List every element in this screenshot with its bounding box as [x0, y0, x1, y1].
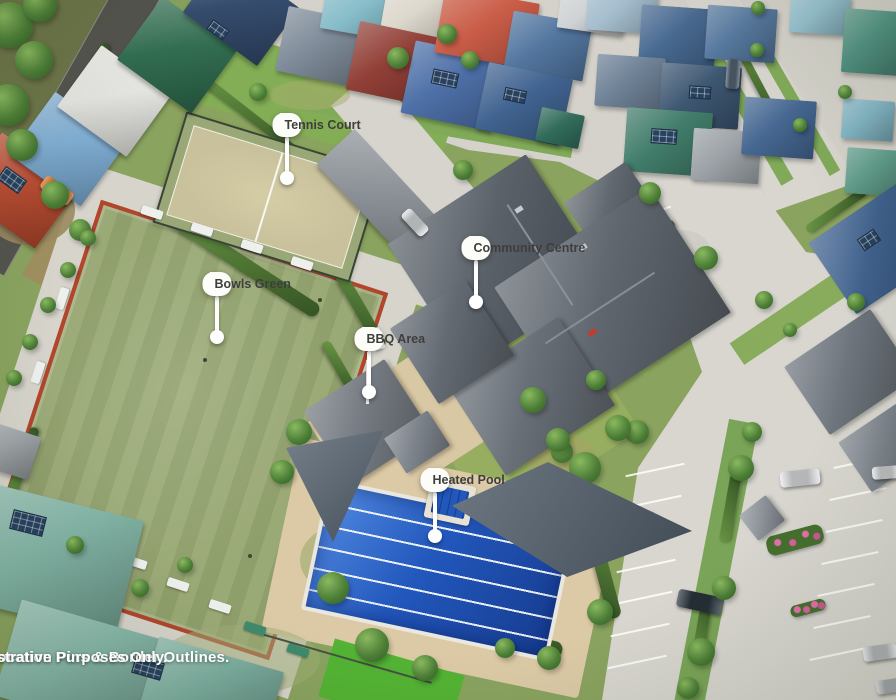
aerial-photo: Tennis Court Community Centre Bowls Gree… — [0, 0, 896, 700]
tree — [355, 628, 389, 662]
tree — [605, 415, 631, 441]
tree — [131, 579, 149, 597]
pin-label-text: BBQ Area — [367, 332, 426, 346]
tree — [742, 422, 762, 442]
tree — [520, 387, 546, 413]
tree — [80, 230, 96, 246]
disclaimer-line2: Illustrative Purposes Only. — [0, 647, 168, 669]
tree — [687, 638, 715, 666]
tree — [712, 576, 736, 600]
pin-label-text: Heated Pool — [433, 473, 505, 487]
tree — [755, 291, 773, 309]
tree — [750, 43, 764, 57]
house-roof — [704, 5, 778, 64]
tree — [317, 572, 349, 604]
tree — [177, 557, 193, 573]
pin-dot — [280, 171, 294, 185]
tree — [587, 599, 613, 625]
tree — [677, 677, 699, 699]
pin-label: Community Centre — [462, 236, 491, 260]
solar-panel — [689, 85, 712, 100]
tennis-net-line — [255, 153, 284, 242]
pin-label-text: Bowls Green — [215, 277, 291, 291]
tree — [793, 118, 807, 132]
pin-label-text: Tennis Court — [285, 118, 361, 132]
tree — [453, 160, 473, 180]
tree — [586, 370, 606, 390]
grass-patch — [318, 298, 322, 302]
tree — [41, 181, 69, 209]
pin-dot — [362, 385, 376, 399]
tree — [783, 323, 797, 337]
pin-label: Heated Pool — [421, 468, 450, 492]
tree — [387, 47, 409, 69]
tree — [6, 129, 38, 161]
tree — [838, 85, 852, 99]
tree — [22, 334, 38, 350]
car — [725, 59, 741, 90]
tree — [412, 655, 438, 681]
tree — [66, 536, 84, 554]
house-roof — [594, 54, 665, 111]
tree — [249, 83, 267, 101]
car — [872, 465, 896, 480]
tree — [437, 24, 457, 44]
pin-label-text: Community Centre — [474, 241, 586, 255]
car — [875, 677, 896, 695]
grass-patch — [248, 554, 252, 558]
pin-dot — [210, 330, 224, 344]
solar-panel — [651, 128, 678, 145]
grass-patch — [203, 358, 207, 362]
tree — [15, 41, 53, 79]
house-roof — [841, 8, 896, 76]
tree — [286, 419, 312, 445]
tree — [40, 297, 56, 313]
tree — [751, 1, 765, 15]
tree — [270, 460, 294, 484]
pin-label: Bowls Green — [203, 272, 232, 296]
pin-label: BBQ Area — [355, 327, 384, 351]
tree — [6, 370, 22, 386]
tree — [694, 246, 718, 270]
pin-dot — [469, 295, 483, 309]
pin-label: Tennis Court — [273, 113, 302, 137]
tree — [60, 262, 76, 278]
tree — [537, 646, 561, 670]
tree — [728, 455, 754, 481]
house-roof — [841, 98, 896, 142]
house-roof — [789, 0, 852, 36]
tree — [461, 51, 479, 69]
pin-dot — [428, 529, 442, 543]
tree — [495, 638, 515, 658]
tree — [546, 428, 570, 452]
grass-patch — [270, 80, 350, 110]
tree — [847, 293, 865, 311]
tree — [639, 182, 661, 204]
